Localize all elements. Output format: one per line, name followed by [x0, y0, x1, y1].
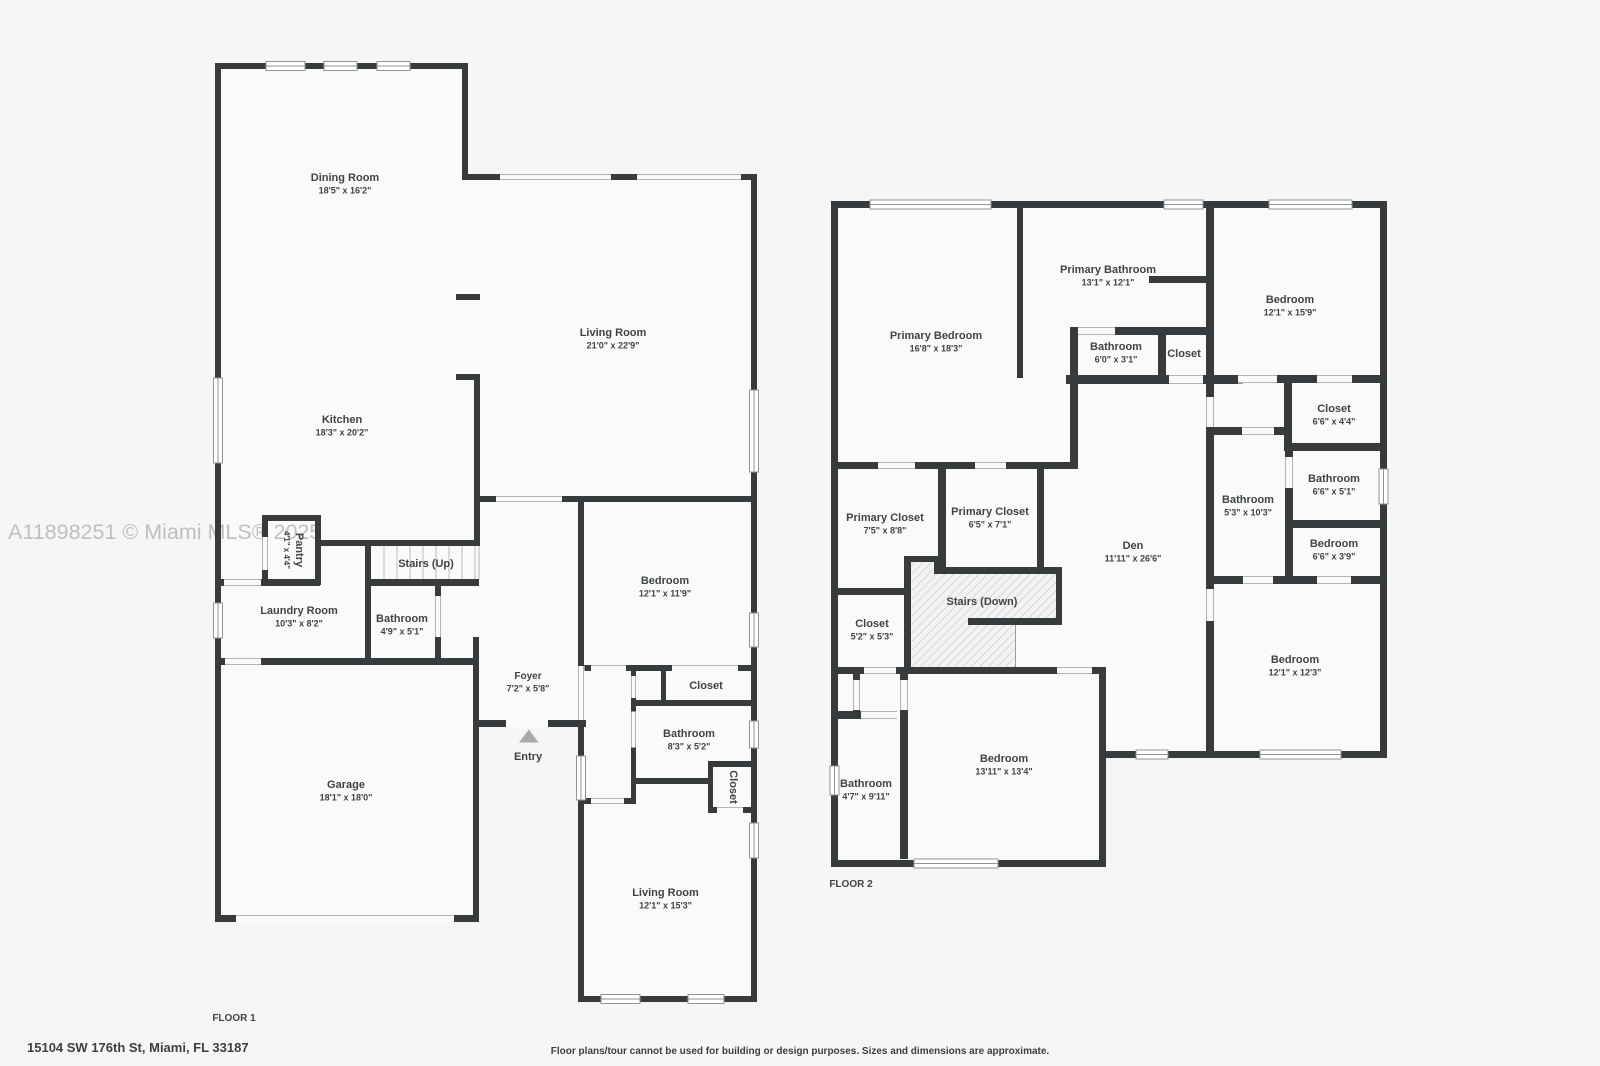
svg-text:6'6" x 3'9": 6'6" x 3'9"	[1313, 552, 1356, 562]
svg-text:12'1" x 15'9": 12'1" x 15'9"	[1264, 308, 1317, 318]
svg-text:Stairs (Up): Stairs (Up)	[398, 558, 454, 570]
svg-text:13'11" x 13'4": 13'11" x 13'4"	[975, 767, 1032, 777]
svg-text:5'2" x 5'3": 5'2" x 5'3"	[851, 632, 894, 642]
svg-text:Primary Bedroom: Primary Bedroom	[890, 330, 983, 342]
svg-text:13'1" x 12'1": 13'1" x 12'1"	[1082, 278, 1135, 288]
svg-text:4'7" x 9'11": 4'7" x 9'11"	[842, 792, 889, 802]
svg-text:Bathroom: Bathroom	[376, 613, 428, 625]
svg-text:Pantry: Pantry	[293, 533, 305, 568]
svg-text:6'5" x 7'1": 6'5" x 7'1"	[969, 520, 1012, 530]
svg-text:Closet: Closet	[689, 680, 723, 692]
svg-text:FLOOR 2: FLOOR 2	[829, 879, 873, 890]
svg-text:Bathroom: Bathroom	[1308, 473, 1360, 485]
svg-text:Garage: Garage	[327, 779, 365, 791]
svg-text:7'2" x 5'8": 7'2" x 5'8"	[507, 684, 550, 694]
svg-text:16'8" x 18'3": 16'8" x 18'3"	[910, 344, 963, 354]
svg-text:12'1" x 15'3": 12'1" x 15'3"	[639, 901, 692, 911]
svg-text:Living Room: Living Room	[632, 887, 699, 899]
svg-text:18'5" x 16'2": 18'5" x 16'2"	[319, 186, 372, 196]
svg-text:4'1" x 4'4": 4'1" x 4'4"	[282, 531, 291, 569]
svg-text:Stairs (Down): Stairs (Down)	[947, 596, 1018, 608]
svg-text:Den: Den	[1123, 540, 1144, 552]
svg-text:Primary Closet: Primary Closet	[951, 506, 1029, 518]
svg-text:Closet: Closet	[727, 770, 739, 804]
svg-text:15104 SW 176th St, Miami, FL 3: 15104 SW 176th St, Miami, FL 33187	[27, 1040, 249, 1055]
svg-text:18'3" x 20'2": 18'3" x 20'2"	[316, 428, 369, 438]
svg-text:6'6" x 5'1": 6'6" x 5'1"	[1313, 487, 1356, 497]
svg-text:4'9" x 5'1": 4'9" x 5'1"	[381, 627, 424, 637]
svg-text:7'5" x 8'8": 7'5" x 8'8"	[864, 526, 907, 536]
svg-text:Bedroom: Bedroom	[1310, 538, 1359, 550]
svg-text:8'3" x 5'2": 8'3" x 5'2"	[668, 742, 711, 752]
svg-text:21'0" x 22'9": 21'0" x 22'9"	[587, 341, 640, 351]
svg-text:18'1" x 18'0": 18'1" x 18'0"	[320, 793, 373, 803]
svg-text:Primary Closet: Primary Closet	[846, 512, 924, 524]
svg-text:Laundry Room: Laundry Room	[260, 605, 338, 617]
svg-text:Bathroom: Bathroom	[840, 778, 892, 790]
svg-text:Bathroom: Bathroom	[1090, 341, 1142, 353]
svg-text:Floor plans/tour cannot be use: Floor plans/tour cannot be used for buil…	[551, 1046, 1050, 1057]
svg-text:Entry: Entry	[514, 751, 543, 763]
svg-text:11'11" x 26'6": 11'11" x 26'6"	[1105, 554, 1162, 564]
svg-text:Closet: Closet	[855, 618, 889, 630]
svg-text:6'6" x 4'4": 6'6" x 4'4"	[1313, 417, 1356, 427]
svg-text:6'0" x 3'1": 6'0" x 3'1"	[1095, 355, 1138, 365]
svg-text:Bedroom: Bedroom	[980, 753, 1029, 765]
svg-text:FLOOR 1: FLOOR 1	[212, 1013, 256, 1024]
svg-text:Bathroom: Bathroom	[663, 728, 715, 740]
svg-text:Living Room: Living Room	[580, 327, 647, 339]
svg-text:Foyer: Foyer	[514, 671, 541, 682]
svg-text:Bedroom: Bedroom	[1266, 294, 1315, 306]
svg-text:Bedroom: Bedroom	[1271, 654, 1320, 666]
svg-text:Bedroom: Bedroom	[641, 575, 690, 587]
svg-text:Kitchen: Kitchen	[322, 414, 363, 426]
svg-text:5'3" x 10'3": 5'3" x 10'3"	[1224, 508, 1272, 518]
svg-text:Bathroom: Bathroom	[1222, 494, 1274, 506]
svg-text:Closet: Closet	[1167, 348, 1201, 360]
svg-text:A11898251 © Miami MLS® 2025: A11898251 © Miami MLS® 2025	[8, 520, 321, 544]
svg-text:10'3" x 8'2": 10'3" x 8'2"	[275, 619, 323, 629]
svg-text:Closet: Closet	[1317, 403, 1351, 415]
svg-text:Primary Bathroom: Primary Bathroom	[1060, 264, 1156, 276]
svg-text:12'1" x 11'9": 12'1" x 11'9"	[639, 589, 691, 599]
svg-text:12'1" x 12'3": 12'1" x 12'3"	[1269, 668, 1322, 678]
svg-text:Dining Room: Dining Room	[311, 172, 380, 184]
